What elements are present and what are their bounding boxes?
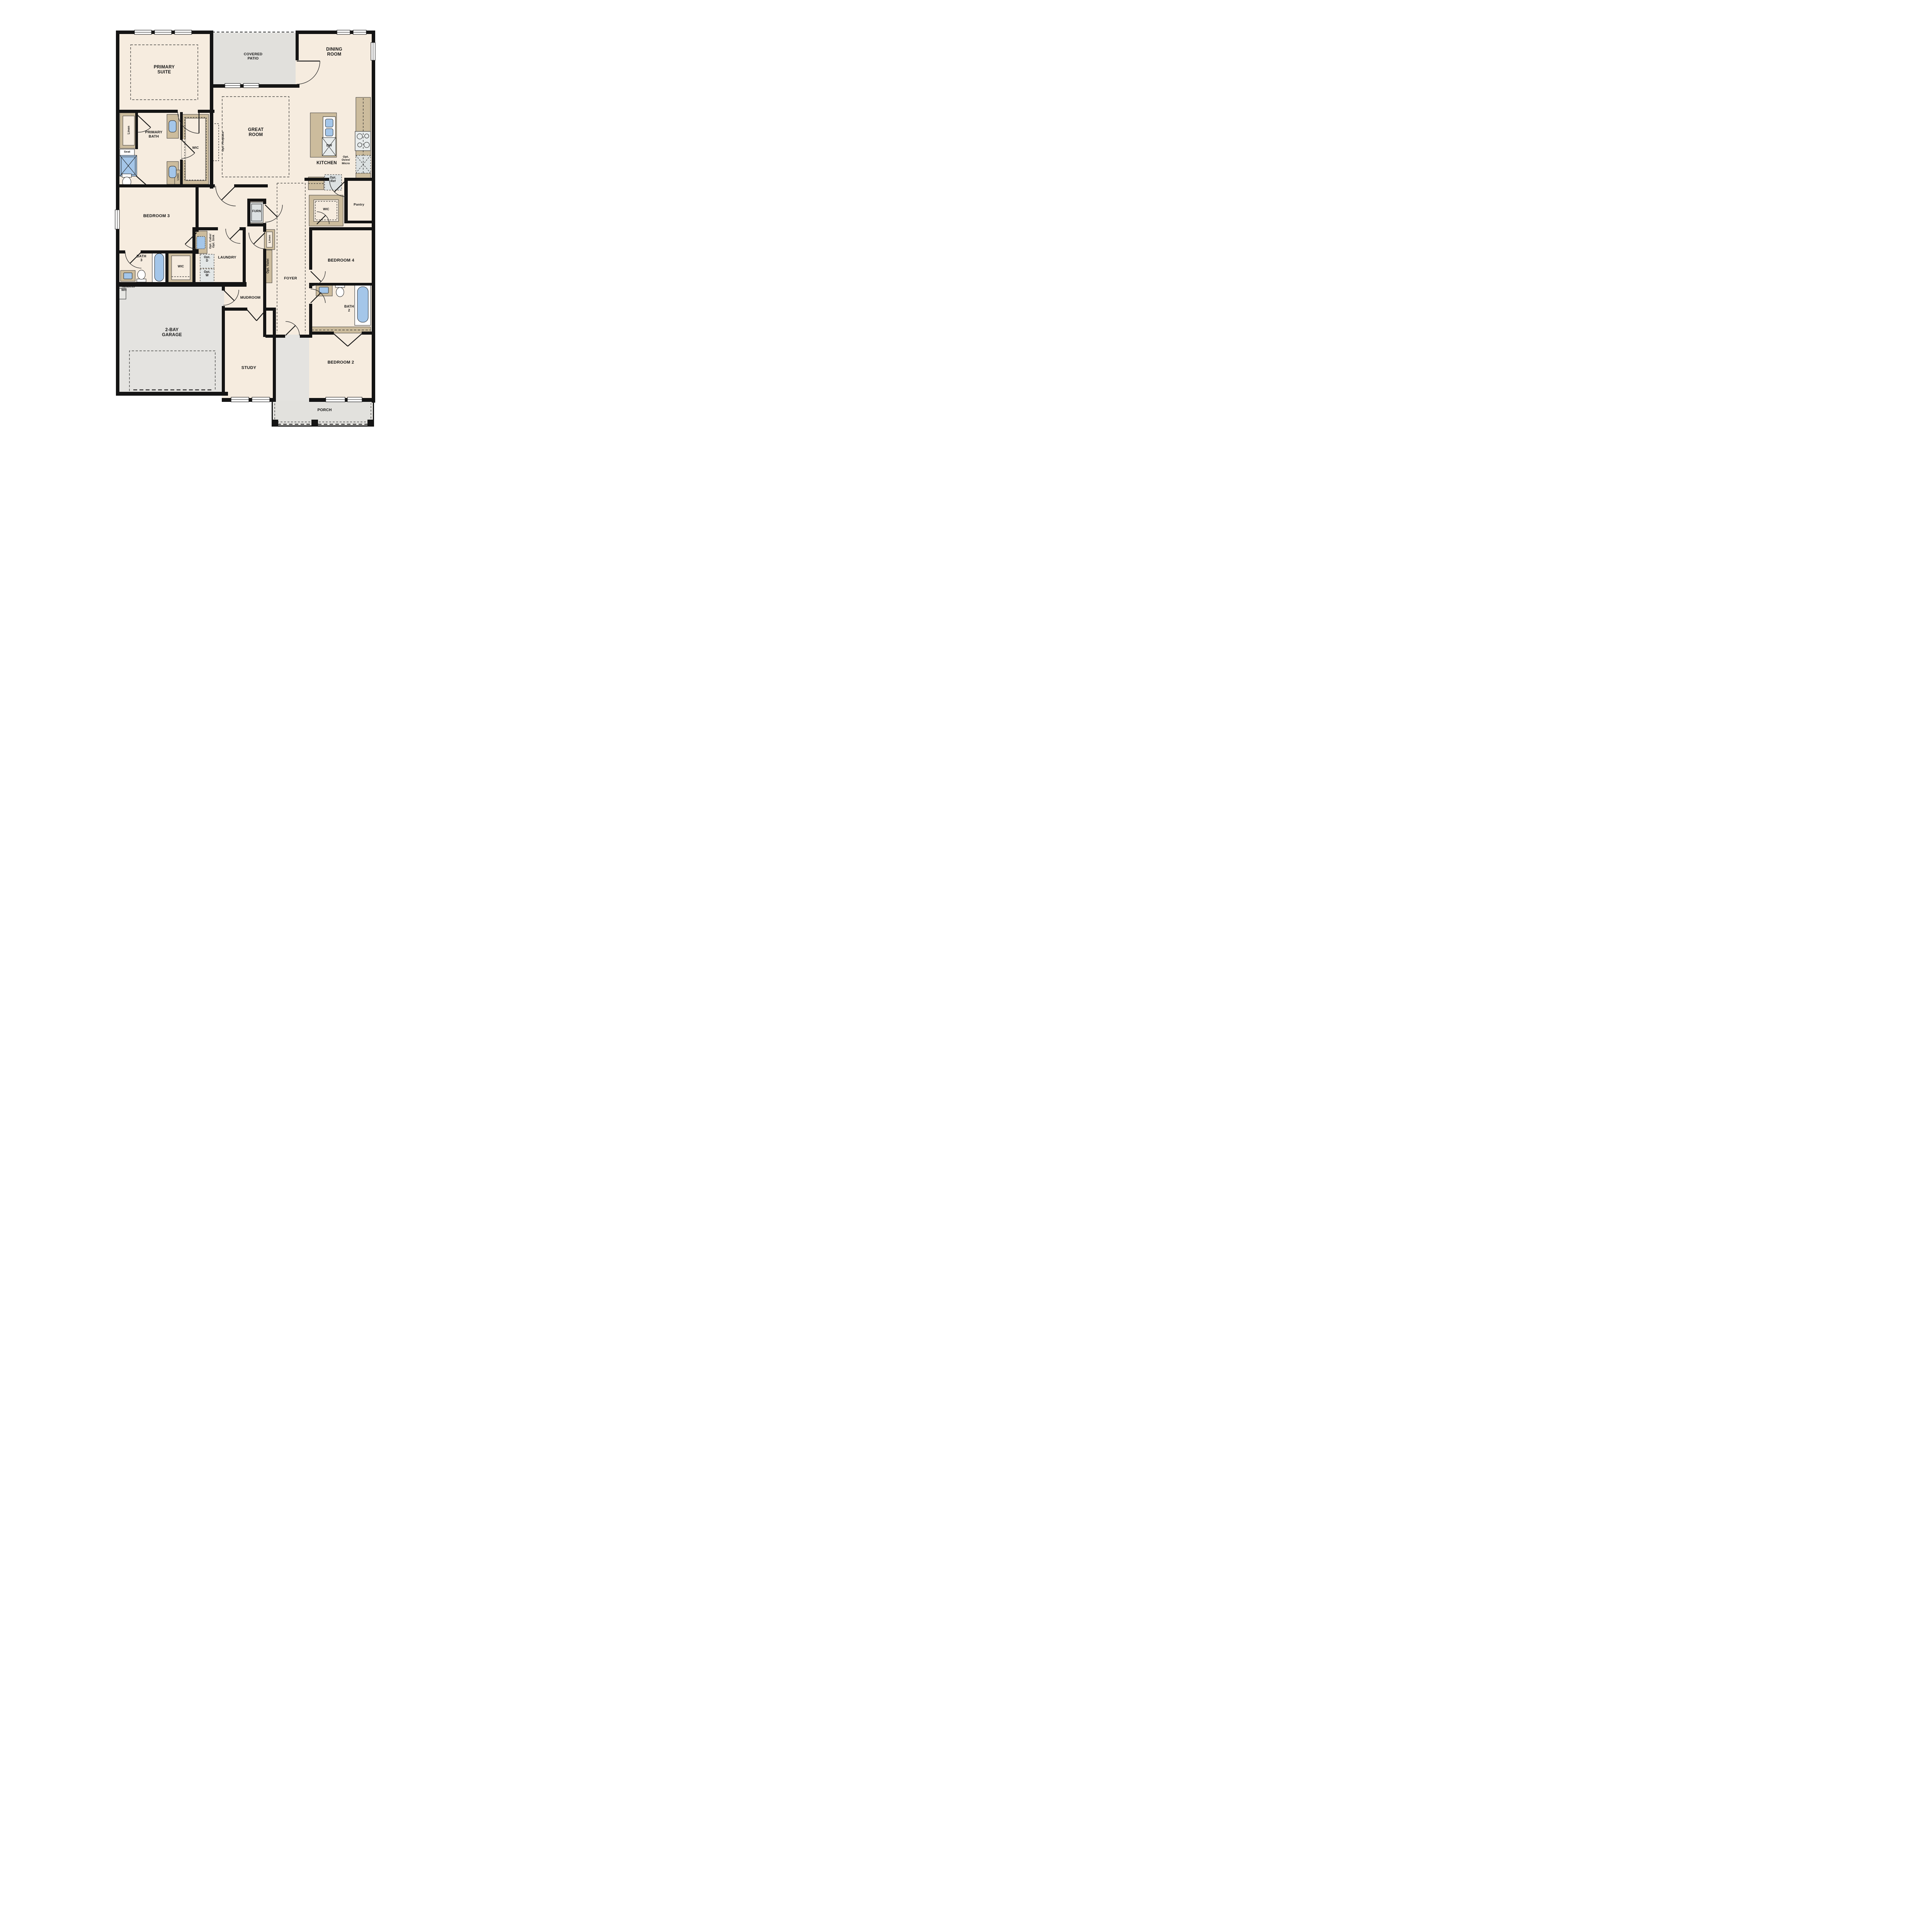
island-sink-bowl bbox=[325, 119, 333, 127]
porch-column bbox=[272, 420, 278, 426]
label-primary-bath: PRIMARY BATH bbox=[137, 131, 170, 139]
label-bedroom-4: BEDROOM 4 bbox=[315, 258, 367, 263]
label-opt-oven-micro: Opt. Oven/ Micro bbox=[337, 155, 355, 165]
label-opt-w: Opt. W bbox=[201, 270, 213, 277]
bath2-sink bbox=[319, 287, 328, 293]
label-bedroom-2: BEDROOM 2 bbox=[312, 360, 369, 365]
label-primary-suite: PRIMARY SUITE bbox=[137, 65, 191, 75]
label-bath-2: BATH 2 bbox=[338, 304, 360, 312]
label-study: STUDY bbox=[231, 366, 267, 370]
floor-plan-drawing bbox=[0, 0, 493, 638]
primary-sink-2 bbox=[169, 166, 176, 178]
label-opt-ref: Opt. Ref bbox=[325, 176, 342, 183]
label-opt-valet: Opt. Valet bbox=[267, 250, 270, 282]
floor-plan-page: PRIMARY SUITE COVERED PATIO DINING ROOM … bbox=[0, 0, 493, 638]
label-opt-d: Opt. D bbox=[201, 256, 213, 263]
label-bedroom-3: BEDROOM 3 bbox=[128, 214, 185, 218]
porch-column bbox=[367, 420, 374, 426]
label-dining-room: DINING ROOM bbox=[309, 47, 359, 57]
label-bath-3: BATH 3 bbox=[131, 254, 151, 262]
entry-walkway-floor bbox=[275, 335, 309, 400]
label-furn: FURN bbox=[249, 210, 264, 213]
label-foyer: FOYER bbox=[275, 277, 306, 281]
label-linen-foyer: Linen bbox=[268, 230, 271, 247]
label-linen-wic: Linen bbox=[177, 171, 179, 183]
porch-column bbox=[311, 420, 318, 426]
label-linen-primary: Linen bbox=[128, 116, 131, 143]
label-wic-bath3: WIC bbox=[172, 265, 189, 269]
label-laundry: LAUNDRY bbox=[210, 256, 245, 260]
laundry-sink bbox=[197, 236, 205, 249]
label-great-room: GREAT ROOM bbox=[229, 128, 283, 138]
cooktop bbox=[355, 131, 371, 151]
label-wic-primary: WIC bbox=[185, 146, 206, 150]
label-opt-fireplace: Opt. Fireplace bbox=[221, 124, 224, 159]
label-pantry: Pantry bbox=[346, 203, 372, 207]
porch-floor bbox=[272, 400, 374, 427]
label-tankless-wh: Tankless WH bbox=[121, 285, 149, 292]
label-opt-cabs-sink: Opt. Cabs/ Opt. Sink bbox=[209, 229, 216, 253]
label-porch: PORCH bbox=[308, 408, 341, 412]
label-seat: Seat bbox=[120, 150, 134, 153]
garage-floor bbox=[118, 284, 224, 394]
label-wic-kitchen: WIC bbox=[316, 208, 336, 211]
bath3-sink bbox=[124, 273, 132, 279]
label-covered-patio: COVERED PATIO bbox=[228, 53, 278, 61]
label-dw: DW bbox=[323, 144, 335, 148]
label-garage: 2-BAY GARAGE bbox=[145, 328, 199, 338]
label-mudroom: MUDROOM bbox=[231, 296, 270, 300]
